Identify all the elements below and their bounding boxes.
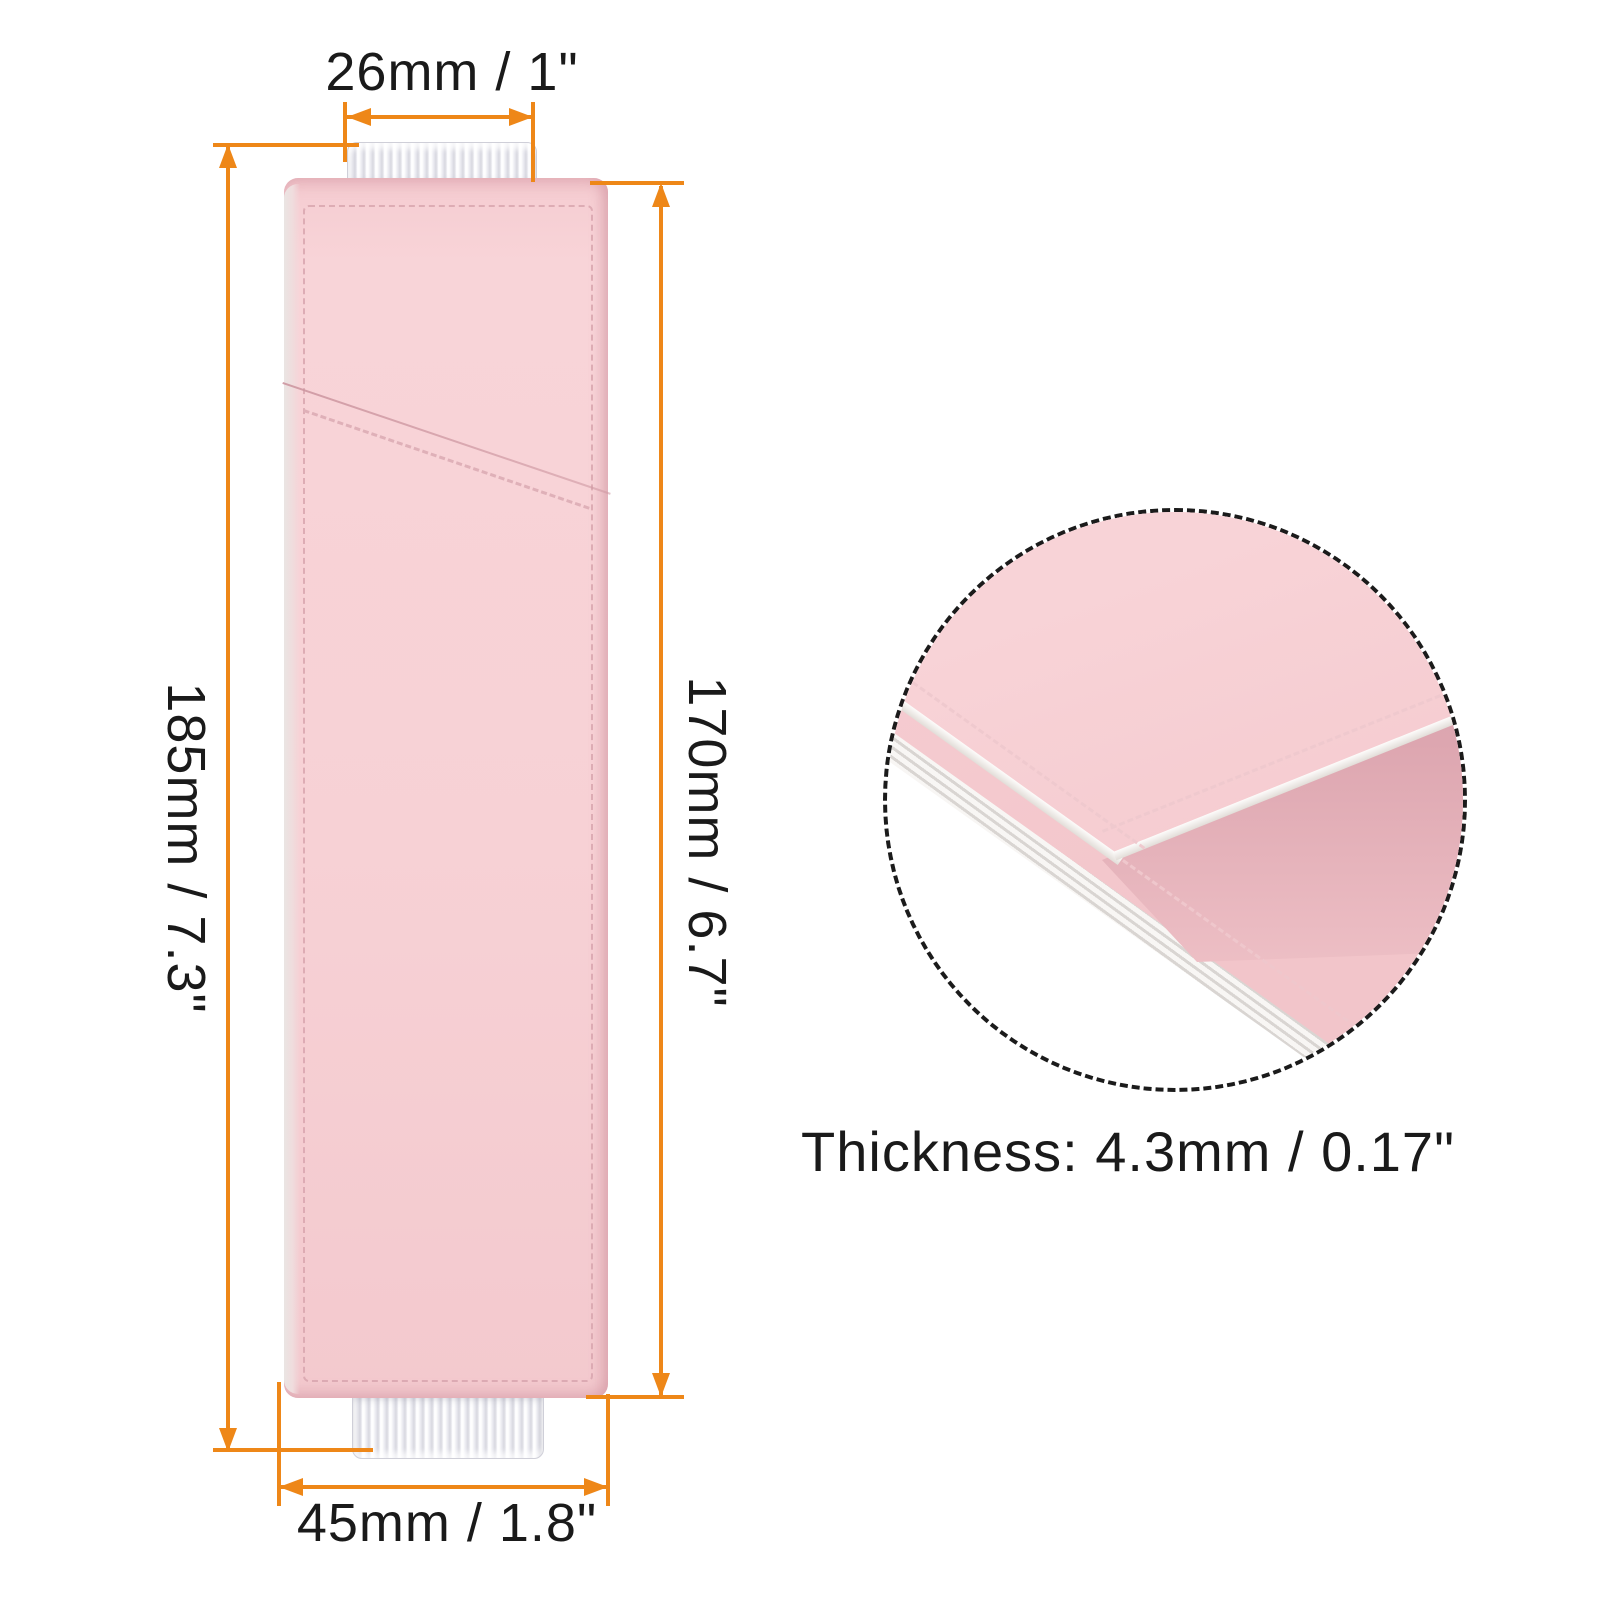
bottom-elastic-band — [352, 1390, 544, 1459]
top-width-label: 26mm / 1" — [325, 45, 578, 99]
sleeve-left-edge-layer — [284, 184, 300, 1394]
bottom-width-dimension-line — [281, 1485, 608, 1489]
body-height-label: 170mm / 6.7" — [680, 676, 734, 1007]
top-width-dimension-line — [347, 115, 533, 119]
top-width-arrow-left — [347, 108, 371, 126]
overall-height-label: 185mm / 7.3" — [159, 682, 213, 1013]
overall-height-dimension-line — [226, 147, 230, 1449]
body-height-dimension-line — [659, 186, 663, 1396]
product-dimension-diagram: 26mm / 1" 185mm / 7.3" 170mm / 6.7" 45mm… — [0, 0, 1600, 1600]
overall-height-extension-bottom — [213, 1448, 373, 1452]
body-height-arrow-bottom — [652, 1373, 670, 1397]
bottom-width-label: 45mm / 1.8" — [297, 1496, 597, 1550]
overall-height-arrow-bottom — [219, 1428, 237, 1452]
thickness-label: Thickness: 4.3mm / 0.17" — [801, 1124, 1455, 1180]
thickness-detail-circle — [883, 508, 1467, 1092]
body-height-arrow-top — [652, 183, 670, 207]
overall-height-arrow-top — [219, 144, 237, 168]
sleeve-stitch-border — [303, 205, 593, 1382]
top-width-arrow-right — [509, 108, 533, 126]
pen-sleeve-body — [284, 178, 608, 1398]
